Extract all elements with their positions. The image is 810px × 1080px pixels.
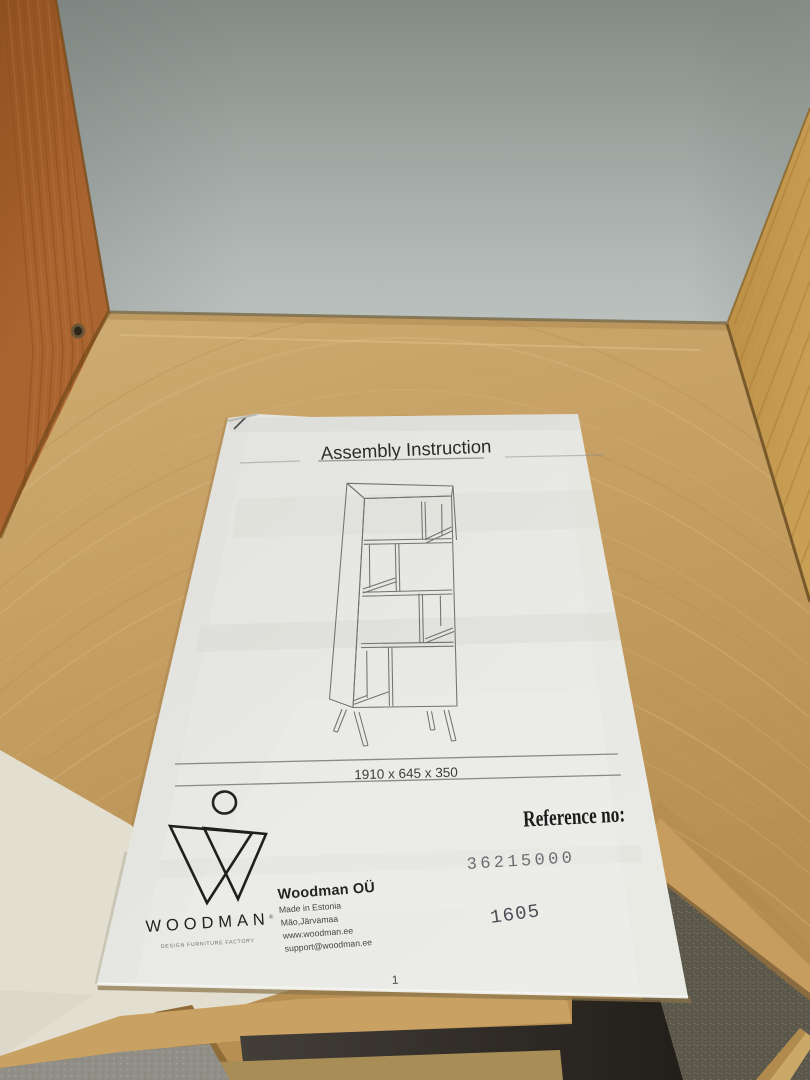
svg-text:1: 1 <box>391 973 399 987</box>
svg-text:Reference no:: Reference no: <box>522 801 625 831</box>
